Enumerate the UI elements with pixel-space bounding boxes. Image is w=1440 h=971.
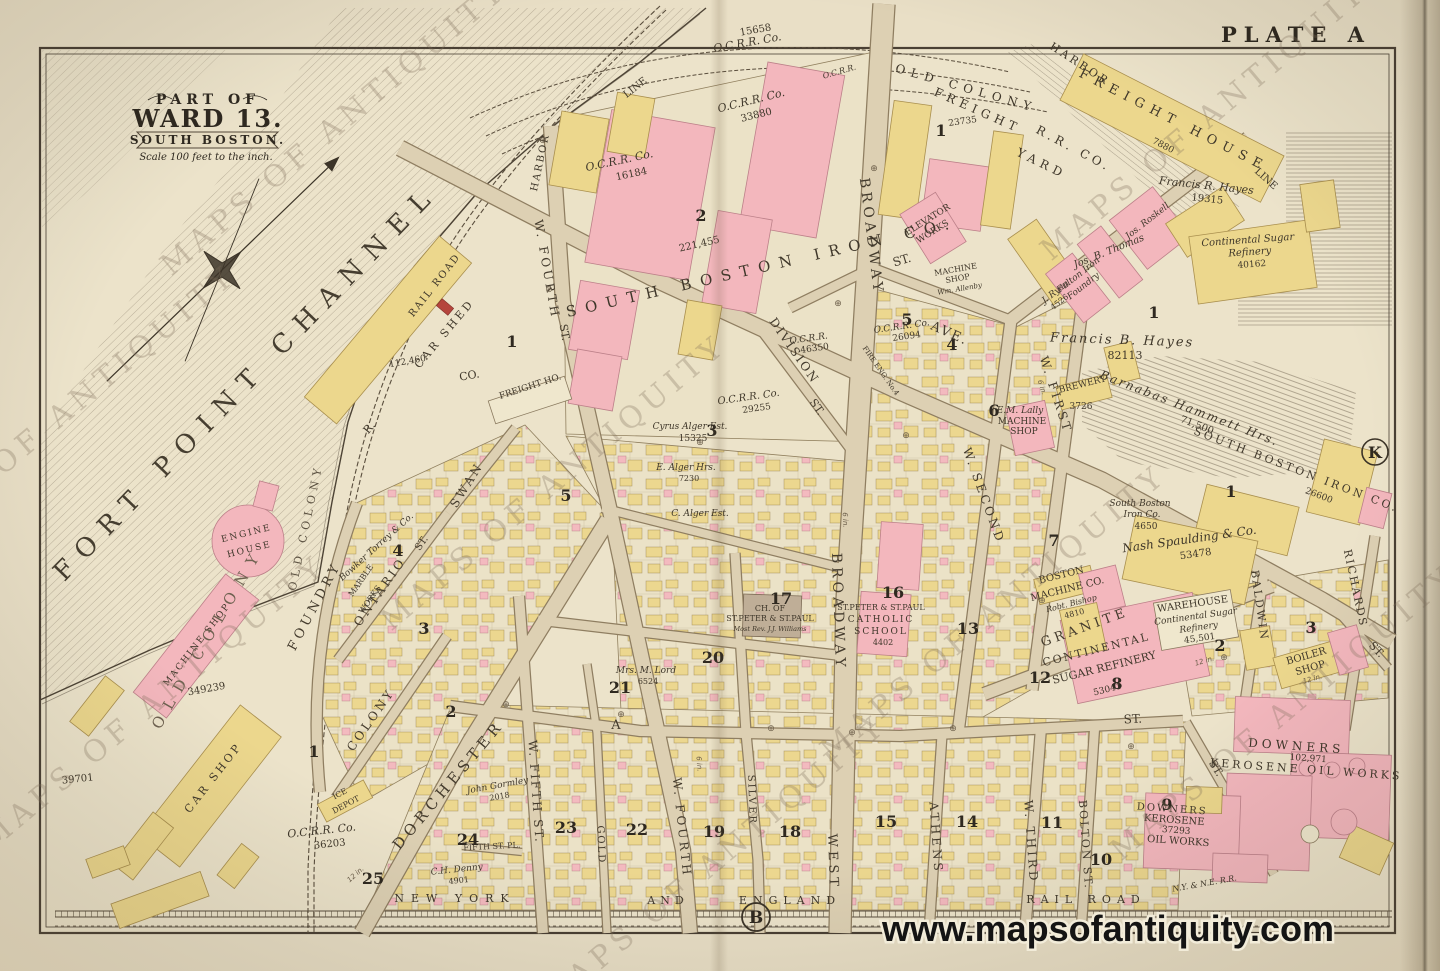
block-number-21: 21 xyxy=(609,678,631,697)
block-number-14: 14 xyxy=(956,812,978,831)
block-number-23: 23 xyxy=(555,818,577,837)
block-number-1: 1 xyxy=(935,121,946,140)
block-number-1: 1 xyxy=(1225,482,1236,501)
e-alger-num: 7230 xyxy=(679,474,699,483)
block-number-6: 6 xyxy=(988,401,999,420)
oil-tank xyxy=(1301,825,1319,843)
block-number-17: 17 xyxy=(770,589,792,608)
block-number-3: 3 xyxy=(1305,618,1316,637)
intersection-mark: ⊕ xyxy=(1038,596,1046,606)
block-number-22: 22 xyxy=(626,820,648,839)
antique-atlas-map-plate: FORT POINT CHANNEL FOUNDRY ONTARIO ST. S… xyxy=(0,0,1440,971)
block-number-4: 4 xyxy=(946,335,957,354)
intersection-mark: ⊕ xyxy=(502,700,510,710)
block-number-1: 1 xyxy=(506,332,517,351)
section-k-letter: K xyxy=(1368,443,1383,462)
lally-1: E.M. Lally xyxy=(996,406,1044,416)
intersection-mark: ⊕ xyxy=(834,299,842,309)
fold-crease xyxy=(710,0,728,971)
intersection-mark: ⊕ xyxy=(949,724,957,734)
sugar-refinery-top-building xyxy=(1300,180,1340,232)
block-number-3: 3 xyxy=(418,619,429,638)
sugar-top-num: 40162 xyxy=(1237,259,1266,271)
block-number-24: 24 xyxy=(457,830,479,849)
intersection-mark: ⊕ xyxy=(539,136,547,146)
block-number-5: 5 xyxy=(901,310,912,329)
e-alger-label: E. Alger Hrs. xyxy=(655,463,716,473)
lord-label: Mrs. M. Lord xyxy=(615,666,676,676)
intersection-mark: ⊕ xyxy=(902,431,910,441)
bottom-rr-new-york: NEW YORK xyxy=(394,892,515,905)
bottom-rr-rail-road: RAIL ROAD xyxy=(1026,893,1145,906)
block-number-1: 1 xyxy=(308,742,319,761)
school-1: ST.PETER & ST.PAUL xyxy=(837,603,925,612)
iron-works-building xyxy=(568,349,622,411)
block-number-2: 2 xyxy=(695,206,706,225)
brewery-num: 3726 xyxy=(1070,402,1093,412)
intersection-mark: ⊕ xyxy=(617,710,625,720)
block-number-25: 25 xyxy=(362,869,384,888)
page-edge-right xyxy=(1400,0,1440,971)
school-num: 4402 xyxy=(873,638,893,647)
block-number-8: 8 xyxy=(1111,674,1122,693)
pipe-size-label: 6 in. xyxy=(841,512,850,528)
school-2: CATHOLIC xyxy=(848,615,915,625)
intersection-mark: ⊕ xyxy=(696,438,704,448)
block-number-12: 12 xyxy=(1029,668,1051,687)
lord-num: 6524 xyxy=(638,677,658,686)
lally-3: SHOP xyxy=(1010,427,1037,437)
iron-co-small-num: 4650 xyxy=(1135,522,1158,532)
section-b-letter: B xyxy=(749,908,763,928)
block-number-4: 4 xyxy=(392,541,403,560)
bottom-rr-england: ENGLAND xyxy=(739,894,841,907)
title-scale: Scale 100 feet to the inch. xyxy=(139,152,272,163)
block-number-15: 15 xyxy=(875,812,897,831)
church-3: Most Rev. J.J. Williams xyxy=(732,625,807,633)
intersection-mark: ⊕ xyxy=(767,724,775,734)
intersection-mark: ⊕ xyxy=(1127,742,1135,752)
street-label-a-st: ST. xyxy=(1123,712,1142,727)
title-ward: WARD 13. xyxy=(132,104,284,133)
lally-2: MACHINE xyxy=(998,417,1046,427)
title-place: SOUTH BOSTON. xyxy=(130,133,286,147)
church-2: ST.PETER & ST.PAUL xyxy=(726,614,814,623)
oil-tank xyxy=(1331,809,1357,835)
block-number-16: 16 xyxy=(882,583,904,602)
school-3: SCHOOL xyxy=(854,627,908,637)
block-number-1: 1 xyxy=(1148,303,1159,322)
street-label-a: A xyxy=(610,718,621,733)
intersection-mark: ⊕ xyxy=(870,164,878,174)
block-number-11: 11 xyxy=(1041,813,1063,832)
website-url: www.mapsofantiquity.com xyxy=(881,908,1334,949)
intersection-mark: ⊕ xyxy=(545,285,553,295)
intersection-mark: ⊕ xyxy=(1220,653,1228,663)
block-number-2: 2 xyxy=(445,702,456,721)
street-label-gold: GOLD xyxy=(594,825,606,864)
pipe-size-label: 6 in. xyxy=(694,756,703,772)
school-annex-building xyxy=(877,522,924,591)
street-label-west: WEST xyxy=(824,833,841,890)
block-number-10: 10 xyxy=(1090,850,1112,869)
hayes-mid-num: 82113 xyxy=(1108,349,1143,362)
